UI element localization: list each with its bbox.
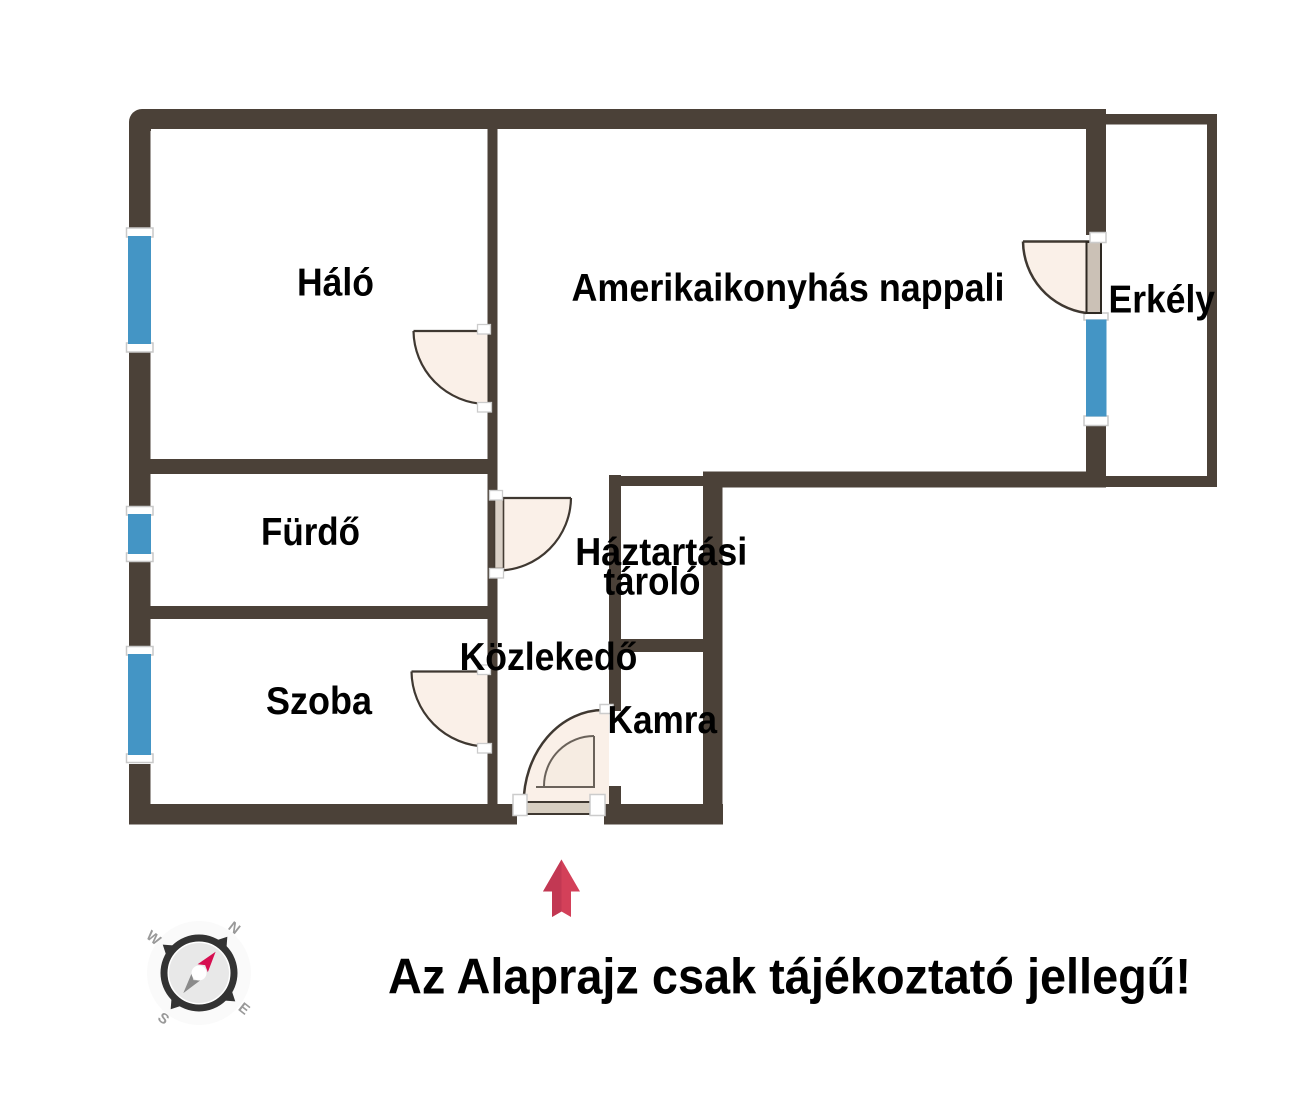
svg-text:Szoba: Szoba — [266, 680, 372, 723]
svg-text:Kamra: Kamra — [608, 699, 718, 742]
svg-text:Háló: Háló — [297, 262, 374, 305]
svg-text:Fürdő: Fürdő — [261, 511, 360, 554]
svg-text:Az Alaprajz csak tájékoztató j: Az Alaprajz csak tájékoztató jellegű! — [388, 949, 1191, 1005]
svg-text:Erkély: Erkély — [1109, 279, 1216, 322]
svg-text:Amerikaikonyhás nappali: Amerikaikonyhás nappali — [572, 267, 1005, 310]
svg-text:tároló: tároló — [604, 561, 701, 604]
svg-text:Közlekedő: Közlekedő — [460, 636, 638, 679]
